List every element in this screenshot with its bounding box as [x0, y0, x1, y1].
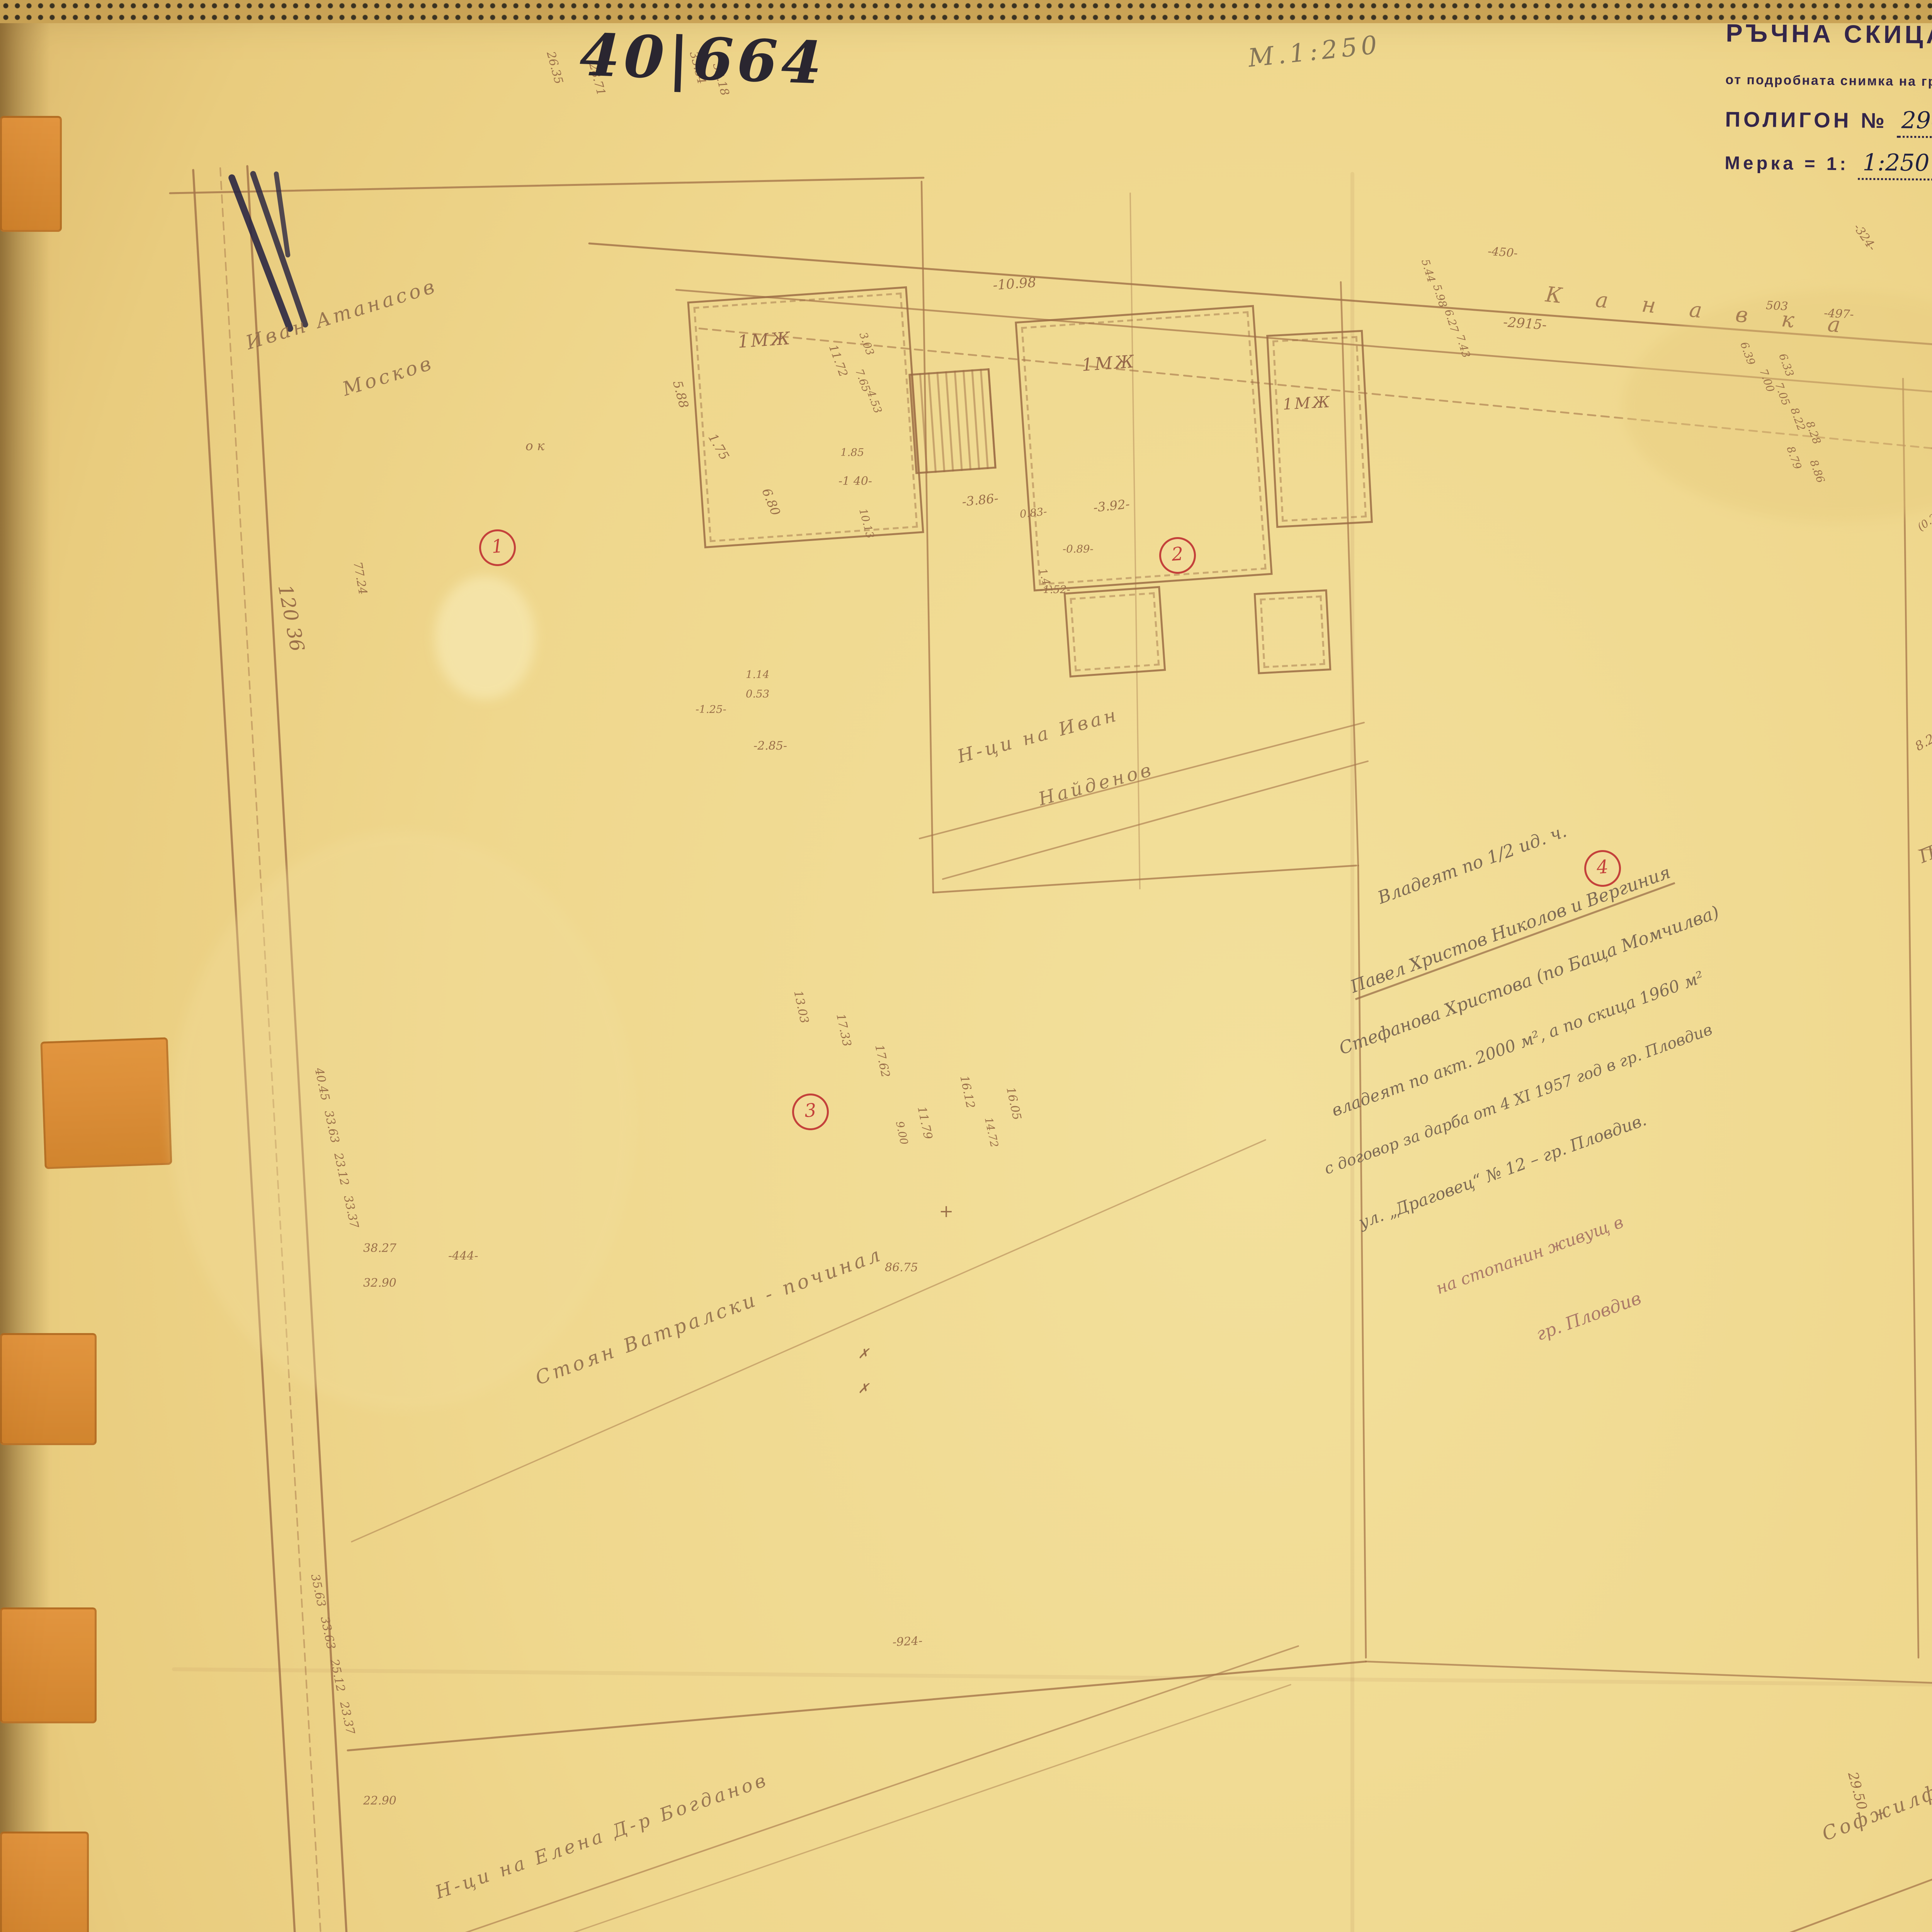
- tape-patch: [0, 1832, 89, 1932]
- survey-line: [340, 1685, 1291, 1932]
- survey-line: [933, 866, 1356, 893]
- measurement-label: 7.43: [1452, 334, 1469, 360]
- inventory-number: 40|664: [578, 23, 827, 99]
- measurement-label: ✗: [858, 1383, 869, 1397]
- measurement-label: 1.85: [840, 450, 864, 461]
- header-scale-row: Мерка = 1: 1:250: [1725, 140, 1932, 182]
- measurement-label: 14.72: [980, 1117, 997, 1149]
- survey-line: [232, 178, 290, 328]
- tape-patch: [0, 116, 62, 232]
- paper-stain: [170, 831, 634, 1410]
- building-type-label: 1МЖ: [1282, 395, 1332, 413]
- measurement-label: -10.98: [993, 277, 1037, 294]
- measurement-label: 16.05: [1003, 1087, 1021, 1121]
- measurement-label: -2.85-: [753, 742, 787, 753]
- owner-name-label: Найденов: [1037, 762, 1156, 810]
- top-edge-perforation: [0, 0, 1932, 23]
- survey-line: [1903, 379, 1918, 1658]
- measurement-label: 1.14: [746, 672, 769, 683]
- paper-stain: [435, 576, 535, 699]
- scanned-cadastral-sketch: 26.3528.7133.8433.18120 3677.24о к40.453…: [0, 0, 1932, 1932]
- measurement-label: 29.50: [1844, 1771, 1867, 1812]
- measurement-label: 120 36: [272, 583, 304, 653]
- measurement-label: 5.44: [1417, 259, 1434, 285]
- measurement-label: -450-: [1487, 247, 1518, 261]
- measurement-label: -3.86-: [961, 493, 999, 509]
- parcel-number-badge: 4: [1583, 849, 1622, 888]
- measurement-label: +: [939, 1206, 954, 1223]
- measurement-label: 16.12: [956, 1075, 975, 1110]
- measurement-label: 23.37: [336, 1701, 354, 1736]
- measurement-label: 25.12: [327, 1658, 345, 1693]
- owner-name-label: Софжилфонд: [1820, 1768, 1932, 1846]
- survey-line: [344, 1646, 1298, 1932]
- parcel-number-badge: 1: [478, 528, 517, 567]
- survey-line: [276, 174, 288, 255]
- measurement-label: 86.75: [885, 1264, 918, 1275]
- owner-name-label: Москов: [341, 355, 437, 401]
- ownership-note-line: на стопанин живущ в: [1435, 1216, 1626, 1299]
- measurement-label: 17.33: [833, 1013, 851, 1048]
- scale-annotation: М.1:250: [1247, 32, 1383, 75]
- header-source-row: от подробната снимка на гр. (с) Красно с…: [1725, 55, 1932, 97]
- tape-patch: [0, 1607, 97, 1723]
- paper-sheet: 26.3528.7133.8433.18120 3677.24о к40.453…: [0, 0, 1932, 1932]
- measurement-label: 77.24: [350, 561, 367, 596]
- measurement-label: 13.03: [790, 990, 808, 1025]
- ownership-note-line: ул. „Драговец“ № 12 – гр. Пловдив.: [1357, 1114, 1649, 1233]
- scale-value: 1:250: [1859, 149, 1932, 180]
- tape-patch: [40, 1037, 172, 1169]
- measurement-label: -1.25-: [696, 707, 726, 718]
- building-outline: [908, 368, 997, 474]
- measurement-label: 33.63: [317, 1616, 335, 1651]
- measurement-label: -444-: [448, 1252, 478, 1264]
- polygon-label: ПОЛИГОН №: [1725, 109, 1888, 134]
- scale-label: Мерка = 1:: [1725, 153, 1849, 176]
- measurement-label: 11.79: [914, 1106, 932, 1141]
- measurement-label: 22.90: [363, 1797, 396, 1808]
- owner-name-label: Н-ци на Иван: [956, 707, 1121, 768]
- survey-line: [1366, 1662, 1932, 1700]
- header-stamp-block: РЪЧНА СКИЦА № 296 I от подробната снимка…: [1725, 12, 1932, 188]
- measurement-label: 38.27: [363, 1244, 396, 1256]
- measurement-label: 0.53: [746, 692, 769, 702]
- measurement-label: -324-: [1850, 223, 1877, 254]
- source-label: от подробната снимка на гр. (с): [1725, 74, 1932, 90]
- building-outline: [1266, 330, 1373, 528]
- survey-line: [170, 178, 923, 193]
- survey-line: [253, 174, 305, 325]
- measurement-label: 5.98: [1429, 284, 1446, 310]
- building-outline: [1015, 305, 1272, 592]
- owner-name-label: Иван Атанасов: [245, 279, 440, 355]
- measurement-label: -0.89-: [1063, 547, 1094, 558]
- measurement-label: -2915-: [1503, 317, 1547, 333]
- measurement-label: 6.27: [1440, 309, 1457, 335]
- building-outline: [1254, 589, 1332, 674]
- tape-patch: [0, 1333, 97, 1445]
- measurement-label: 17.62: [871, 1044, 889, 1079]
- polygon-value: 296-I: [1897, 107, 1932, 138]
- measurement-label: ✗: [858, 1349, 869, 1362]
- measurement-label: 32.90: [363, 1279, 396, 1291]
- survey-line: [348, 1662, 1366, 1750]
- parcel-number-badge: 3: [791, 1092, 830, 1131]
- measurement-label: -924-: [892, 1637, 923, 1650]
- measurement-label: -3.92-: [1093, 498, 1130, 515]
- measurement-label: -1.52-: [1039, 587, 1070, 598]
- survey-line: [922, 182, 933, 893]
- owner-name-label: Н-ци на Елена Д-р Богданов: [434, 1772, 771, 1903]
- ownership-note-line: гр. Пловдив: [1535, 1292, 1644, 1346]
- measurement-label: 26.35: [543, 51, 563, 86]
- measurement-label: 8.27: [1913, 729, 1932, 753]
- measurement-label: -1 40-: [838, 477, 872, 489]
- building-outline: [1064, 586, 1166, 678]
- measurement-label: 5.88: [670, 379, 689, 410]
- owner-name-label: Петко Пешев: [1917, 787, 1932, 868]
- survey-line: [174, 1669, 1932, 1689]
- measurement-label: о к: [526, 440, 544, 453]
- header-polygon-row: ПОЛИГОН № 296-I: [1725, 97, 1932, 140]
- ownership-note-line: Владеят по 1/2 ид. ч.: [1376, 825, 1570, 910]
- measurement-label: 35.63: [307, 1573, 325, 1608]
- building-outline: [687, 286, 924, 548]
- measurement-label: 9.00: [891, 1121, 907, 1146]
